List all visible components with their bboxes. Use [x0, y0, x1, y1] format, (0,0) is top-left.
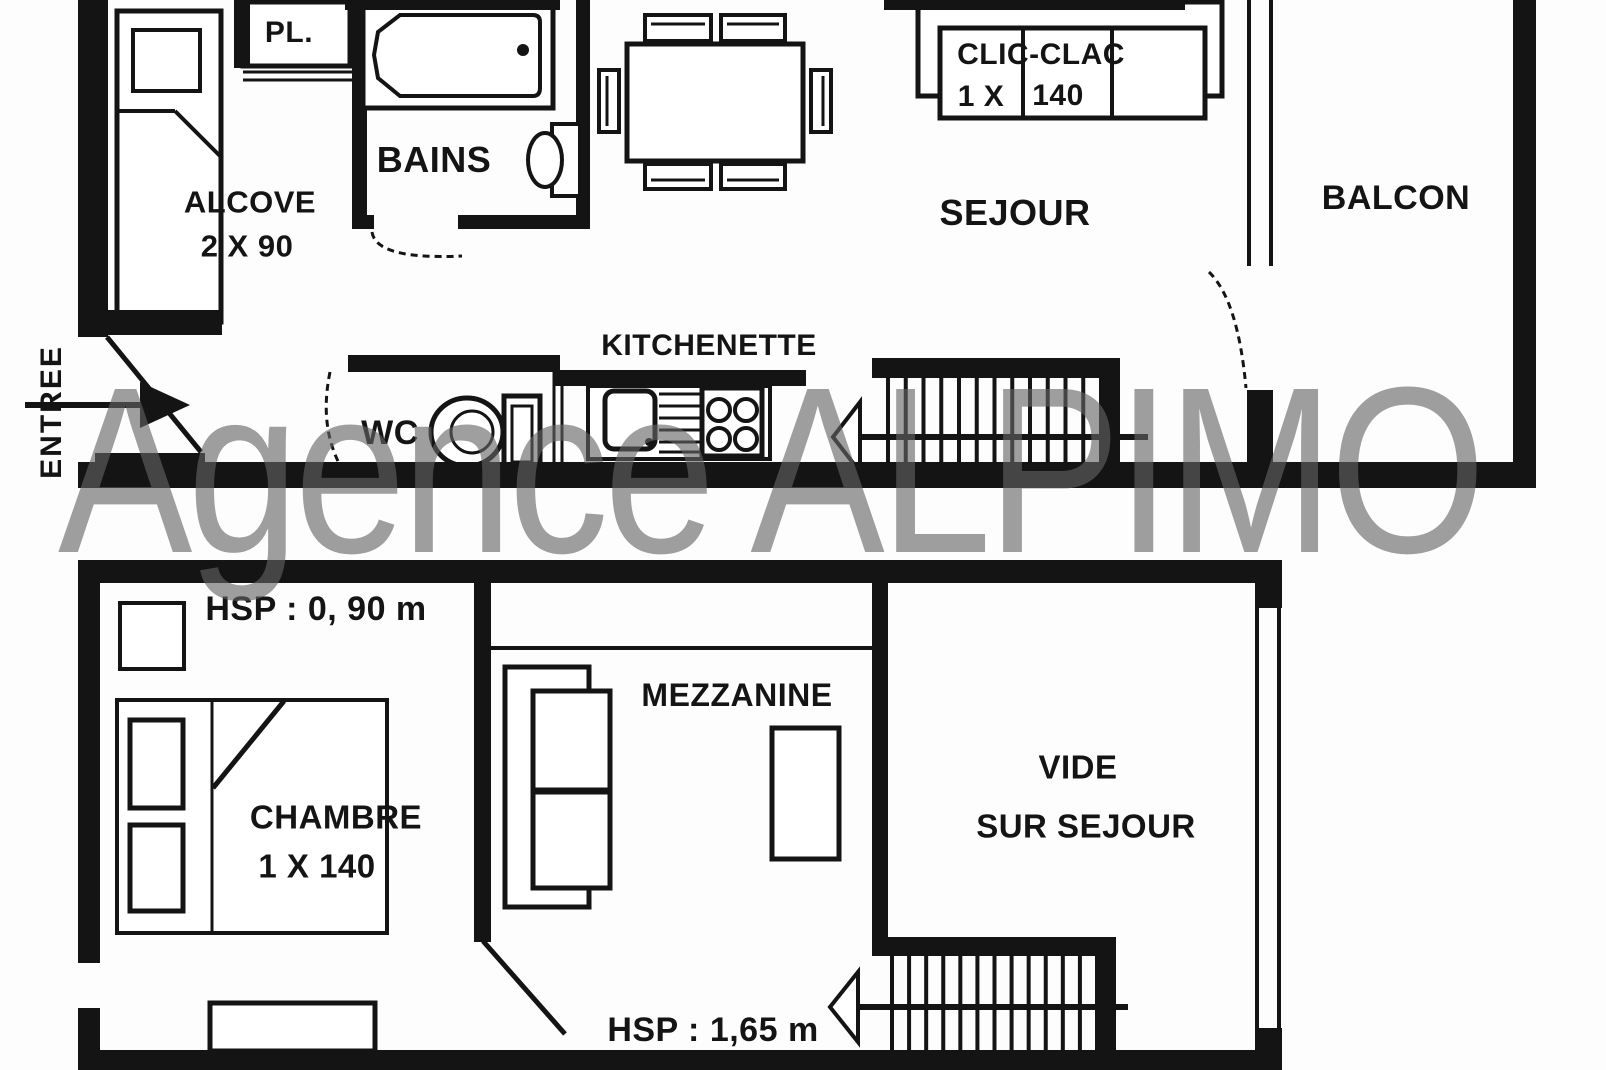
kitchenette-unit: [555, 370, 806, 459]
bathtub: [363, 5, 553, 108]
floorplan-page: { "watermark_text": "Agence ALPIMO", "co…: [0, 0, 1606, 1070]
label-clic-clac-dim-a: 1 X: [958, 82, 1005, 112]
chair: [599, 70, 619, 132]
entrance-arrow: [140, 382, 190, 428]
chambre-dresser: [210, 1003, 375, 1051]
stair-direction-arrowhead: [833, 402, 860, 472]
bath-sink: [528, 124, 580, 196]
alcove-bed: [117, 11, 221, 322]
chambre-partition-wall: [474, 583, 491, 942]
balcony-door-swing: [1209, 272, 1246, 388]
chair: [721, 164, 785, 189]
label-alcove-dim: 2 X 90: [201, 231, 294, 262]
bathtub-drain: [517, 44, 529, 56]
label-placard: PL.: [265, 18, 313, 48]
label-bains: BAINS: [377, 142, 492, 178]
chair: [645, 15, 711, 41]
label-wc: WC: [361, 416, 419, 450]
staircase-steps: [892, 956, 1097, 1050]
label-clic-clac-dim-b: 140: [1032, 81, 1084, 111]
dining-table-set: [599, 15, 831, 189]
chambre-skylight: [120, 603, 184, 669]
label-balcon: BALCON: [1322, 181, 1470, 215]
label-vide-2: SUR SEJOUR: [976, 810, 1196, 843]
staircase-lower: [830, 937, 1128, 1050]
mezzanine-table: [772, 728, 839, 859]
chair: [645, 164, 711, 189]
bathroom: [352, 0, 590, 257]
label-alcove: ALCOVE: [184, 187, 316, 218]
lower-bottom-wall: [78, 1050, 1282, 1070]
staircase-steps: [888, 378, 1101, 462]
label-vide-1: VIDE: [1038, 751, 1117, 784]
label-hsp-low: HSP : 0, 90 m: [205, 592, 426, 626]
mezzanine-sofa: [505, 667, 610, 907]
upper-bottom-wall: [78, 462, 1536, 488]
lower-top-wall: [78, 560, 1282, 583]
toilet: [431, 396, 540, 472]
floor-plan: ENTREE ALCOVE 2 X 90 PL. BAINS WC KITCHE…: [0, 0, 1606, 1070]
kitchen-hob: [702, 388, 762, 456]
label-entree: ENTREE: [37, 345, 67, 479]
label-clic-clac: CLIC-CLAC: [957, 40, 1125, 70]
balcony-right-wall: [1513, 0, 1536, 488]
chair: [721, 15, 785, 41]
chambre-door-leaf: [483, 941, 565, 1034]
label-chambre-dim: 1 X 140: [258, 850, 375, 883]
label-hsp-high: HSP : 1,65 m: [607, 1013, 818, 1047]
staircase-upper: [833, 358, 1148, 472]
label-mezzanine: MEZZANINE: [641, 679, 832, 711]
floor-plan-drawing: [0, 0, 1606, 1070]
bathroom-door-swing: [372, 232, 462, 257]
dining-table: [627, 44, 803, 161]
chair: [811, 70, 831, 132]
mezzanine-void-wall: [872, 583, 888, 947]
label-kitchenette: KITCHENETTE: [601, 331, 817, 361]
stair-direction-arrowhead: [830, 972, 858, 1042]
label-chambre: CHAMBRE: [250, 801, 422, 834]
label-sejour: SEJOUR: [939, 195, 1090, 231]
